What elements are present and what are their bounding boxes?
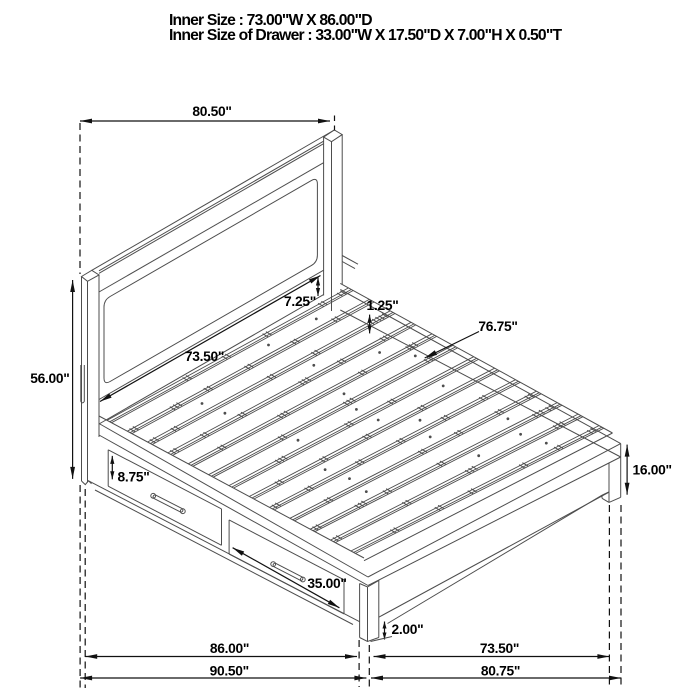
svg-text:80.50": 80.50" [192, 104, 231, 119]
svg-text:2.00": 2.00" [392, 622, 424, 637]
svg-text:90.50": 90.50" [210, 664, 249, 679]
svg-text:1.25": 1.25" [367, 298, 399, 313]
svg-text:56.00": 56.00" [30, 371, 69, 386]
svg-text:16.00": 16.00" [633, 463, 672, 478]
svg-text:Inner Size of Drawer : 33.00"W: Inner Size of Drawer : 33.00"W X 17.50"D… [169, 27, 562, 44]
svg-text:86.00": 86.00" [210, 641, 249, 656]
svg-text:35.00": 35.00" [307, 576, 346, 591]
svg-text:8.75": 8.75" [118, 470, 150, 485]
svg-text:80.75": 80.75" [481, 664, 520, 679]
svg-text:76.75": 76.75" [478, 319, 517, 334]
svg-text:73.50": 73.50" [185, 349, 224, 364]
svg-text:73.50": 73.50" [480, 641, 519, 656]
svg-text:7.25": 7.25" [284, 294, 316, 309]
